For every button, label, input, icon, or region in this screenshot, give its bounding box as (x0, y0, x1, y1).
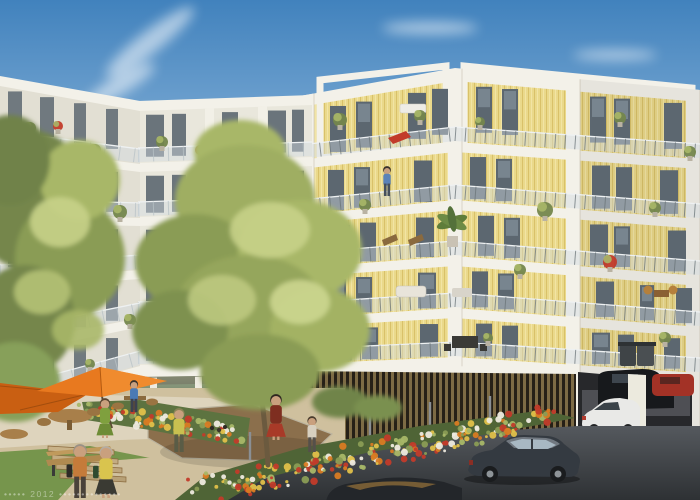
flower (312, 451, 319, 458)
balcony-plant-highlight (649, 202, 656, 209)
window-reflection (506, 220, 518, 236)
flower (371, 454, 377, 460)
flower (133, 423, 140, 430)
window (106, 109, 118, 149)
person-head (308, 418, 316, 426)
patio-table (654, 290, 669, 297)
plant-pot (608, 267, 613, 272)
flower (376, 462, 379, 465)
flower (235, 469, 240, 474)
flower (270, 481, 277, 488)
flower (227, 480, 231, 484)
flower (397, 438, 404, 445)
flower (162, 422, 165, 425)
window-reflection (592, 99, 604, 117)
plant-pot (128, 324, 133, 329)
flower (210, 473, 215, 478)
flower (312, 458, 319, 465)
flower (304, 462, 309, 467)
flower (257, 472, 261, 476)
flower (335, 464, 338, 467)
person-head (131, 382, 138, 389)
flower (467, 428, 472, 433)
plant-pot (478, 125, 483, 130)
flower (424, 452, 427, 455)
balcony-plant-highlight (53, 121, 59, 127)
chair (146, 399, 158, 406)
window-reflection (358, 104, 370, 122)
balcony-plant-highlight (483, 333, 489, 339)
person-torso (270, 405, 282, 423)
bench-leg (52, 465, 55, 476)
flower (474, 442, 479, 447)
patio-chair (644, 286, 653, 295)
flower (485, 435, 488, 438)
flower (551, 409, 556, 414)
balcony-plant-highlight (359, 199, 366, 206)
window-reflection (594, 335, 608, 348)
window-reflection (500, 276, 512, 290)
flower (270, 476, 273, 479)
scene-canvas: ••••• 2012 •••••••••••••• (0, 0, 700, 500)
table-leg (67, 420, 72, 430)
petanque-ball (217, 428, 221, 432)
plant-pot (160, 146, 165, 151)
chair (87, 408, 101, 416)
flower (221, 480, 224, 483)
waste-bins (618, 342, 656, 366)
plant-pot (118, 217, 123, 222)
person-head (271, 396, 281, 406)
flower (358, 441, 364, 447)
car-taillight (582, 416, 586, 420)
flower (149, 414, 154, 419)
flower (245, 478, 249, 482)
plant-pot (418, 120, 423, 125)
flower (350, 460, 356, 466)
flower (395, 450, 401, 456)
flower (215, 436, 220, 441)
flower (420, 437, 424, 441)
plant-pot (688, 156, 693, 161)
flower (543, 418, 550, 425)
flower (334, 472, 341, 479)
plant-pot (486, 341, 491, 346)
flower (454, 421, 459, 426)
red-car-window (660, 377, 680, 384)
flower (478, 436, 482, 440)
flower (479, 441, 484, 446)
flower (186, 478, 190, 482)
flower (511, 431, 517, 437)
flower (230, 427, 235, 432)
window (74, 103, 86, 143)
balcony-plant-highlight (113, 205, 121, 213)
foliage (230, 202, 310, 258)
flower (221, 474, 226, 479)
flower (273, 464, 279, 470)
petanque-ball (223, 425, 227, 429)
plant-pot (56, 129, 61, 134)
flower (359, 465, 363, 469)
person-head (100, 448, 112, 460)
flower (245, 487, 252, 494)
flower (458, 426, 464, 432)
architectural-rendering: ••••• 2012 •••••••••••••• (0, 0, 700, 500)
flower (322, 469, 325, 472)
flower (504, 428, 511, 435)
flower (487, 417, 493, 423)
flower (495, 416, 501, 422)
flower (443, 434, 446, 437)
flower (214, 420, 221, 427)
flower (516, 422, 523, 429)
patio-chair (669, 286, 678, 295)
flower (456, 444, 459, 447)
balcony-plant-highlight (414, 110, 421, 117)
flower (77, 403, 81, 407)
balcony-plant-highlight (475, 117, 481, 123)
flower (543, 412, 547, 416)
foliage (14, 270, 70, 314)
flower (336, 457, 343, 464)
window-reflection (498, 161, 510, 178)
flower (156, 416, 160, 420)
balcony-plant-highlight (156, 136, 163, 143)
flower (464, 436, 469, 441)
flower (286, 484, 289, 487)
person-torso (99, 458, 112, 479)
flower (190, 428, 193, 431)
flower (391, 444, 395, 448)
flower (296, 467, 302, 473)
balcony-plant-highlight (85, 359, 91, 365)
bin-lid (618, 342, 638, 346)
person-leg (384, 184, 387, 196)
flower (160, 416, 166, 422)
flower (139, 408, 146, 415)
window (40, 97, 54, 137)
window-reflection (504, 91, 516, 109)
stool (444, 344, 451, 351)
wheel-rim (487, 471, 494, 478)
flower (204, 471, 208, 475)
person-leg (102, 435, 104, 438)
flower (370, 443, 373, 446)
flower (385, 459, 392, 466)
flower (318, 464, 323, 469)
flower (222, 438, 227, 443)
flower (256, 485, 262, 491)
flower (359, 456, 363, 460)
flower (234, 438, 239, 443)
flower (390, 449, 394, 453)
flower (489, 432, 496, 439)
flower (328, 456, 333, 461)
flower (511, 423, 515, 427)
flower (422, 455, 426, 459)
flower (421, 441, 428, 448)
balcony-plant-highlight (124, 314, 131, 321)
flower (140, 425, 143, 428)
balcony-plant-highlight (659, 332, 666, 339)
balcony-plant-highlight (537, 202, 547, 212)
plant-pot (338, 125, 343, 130)
window-reflection (616, 228, 628, 244)
flower (339, 443, 346, 450)
balcony-plant-highlight (614, 112, 621, 119)
flower (415, 450, 422, 457)
flower (310, 477, 317, 484)
flower (505, 411, 512, 418)
balcony-table-set (452, 336, 478, 348)
flower (262, 475, 266, 479)
flower (394, 445, 400, 451)
plant-pot (663, 342, 668, 347)
lounge-chair (452, 288, 472, 297)
person-leg (180, 434, 184, 452)
flower (514, 428, 517, 431)
flower (285, 480, 288, 483)
balcony-sofa (396, 286, 426, 297)
flower (195, 487, 200, 492)
flower (190, 490, 194, 494)
flower (546, 409, 550, 413)
flower (86, 402, 91, 407)
balcony-plant-highlight (603, 255, 611, 263)
foliage (270, 280, 330, 324)
flower (475, 427, 480, 432)
wheel-rim (555, 471, 562, 478)
petanque-ball (210, 426, 214, 430)
foliage (200, 334, 320, 410)
cloud (382, 22, 478, 34)
plant-pot (543, 216, 548, 221)
flower (419, 432, 423, 436)
person-torso (100, 408, 110, 424)
flower (277, 484, 281, 488)
foliage (52, 310, 104, 350)
person-leg (134, 399, 137, 412)
flower (526, 418, 531, 423)
flower (503, 420, 508, 425)
flower (214, 485, 218, 489)
flower (384, 434, 391, 441)
person-torso (173, 419, 184, 437)
flower (343, 466, 347, 470)
flower (425, 431, 432, 438)
watermark: ••••• 2012 •••••••••••••• (4, 489, 122, 499)
chair (112, 403, 124, 410)
plant-pot (447, 236, 458, 247)
flower (227, 432, 232, 437)
chair (37, 418, 51, 426)
balcony-plant-highlight (514, 264, 521, 271)
person-head (384, 168, 390, 174)
flower (235, 484, 242, 491)
flower (452, 432, 456, 436)
flower (310, 467, 316, 473)
person-leg (313, 437, 316, 452)
waste-bin (620, 344, 636, 366)
small-table (0, 429, 28, 439)
person-bag (93, 466, 99, 479)
flower (121, 410, 125, 414)
flower (237, 479, 241, 483)
flower (199, 479, 206, 486)
foliage (188, 275, 256, 325)
flower (250, 477, 256, 483)
balcony-plant-highlight (333, 113, 341, 121)
foliage (30, 197, 90, 247)
plant-pot (618, 122, 623, 127)
person-leg (273, 436, 275, 440)
person-torso (73, 457, 87, 479)
window-reflection (478, 89, 490, 107)
person-leg (131, 399, 134, 412)
flower (260, 480, 265, 485)
waste-bin (637, 344, 654, 366)
balcony-plant-highlight (684, 146, 691, 153)
flower (252, 489, 255, 492)
flower (459, 439, 465, 445)
flower (443, 449, 446, 452)
person-leg (174, 434, 178, 452)
flower (164, 424, 171, 431)
bin-lid (636, 342, 656, 346)
flower (117, 415, 124, 422)
person-leg (106, 435, 108, 438)
flower (436, 442, 443, 449)
foliage (354, 395, 402, 421)
person-leg (387, 184, 390, 196)
person-head (174, 410, 184, 420)
person-bag (67, 464, 73, 477)
flower (401, 449, 408, 456)
flower (285, 469, 289, 473)
plant-pot (363, 209, 368, 214)
flower (535, 408, 542, 415)
flower (129, 414, 134, 419)
flower (199, 422, 205, 428)
window-reflection (356, 169, 368, 185)
flower (347, 468, 353, 474)
flower (256, 463, 262, 469)
flower (185, 427, 190, 432)
flower (468, 420, 475, 427)
person-torso (308, 425, 317, 439)
plant-pot (518, 274, 523, 279)
cloud (573, 50, 657, 60)
plant-pot (653, 212, 658, 217)
flower (185, 416, 192, 423)
flower (207, 433, 212, 438)
flower (473, 432, 479, 438)
flower (374, 444, 379, 449)
flower (452, 445, 456, 449)
flower (401, 456, 408, 463)
flower (330, 467, 335, 472)
flower (149, 422, 154, 427)
person-leg (308, 437, 311, 452)
person-leg (277, 436, 279, 440)
flower (302, 476, 310, 484)
flower (369, 447, 373, 451)
flower (202, 433, 206, 437)
flower (411, 457, 416, 462)
car-taillight (469, 460, 473, 465)
flower (240, 475, 244, 479)
person-head (101, 400, 110, 409)
window-reflection (358, 279, 370, 293)
carport (578, 369, 694, 435)
person-head (74, 446, 86, 458)
